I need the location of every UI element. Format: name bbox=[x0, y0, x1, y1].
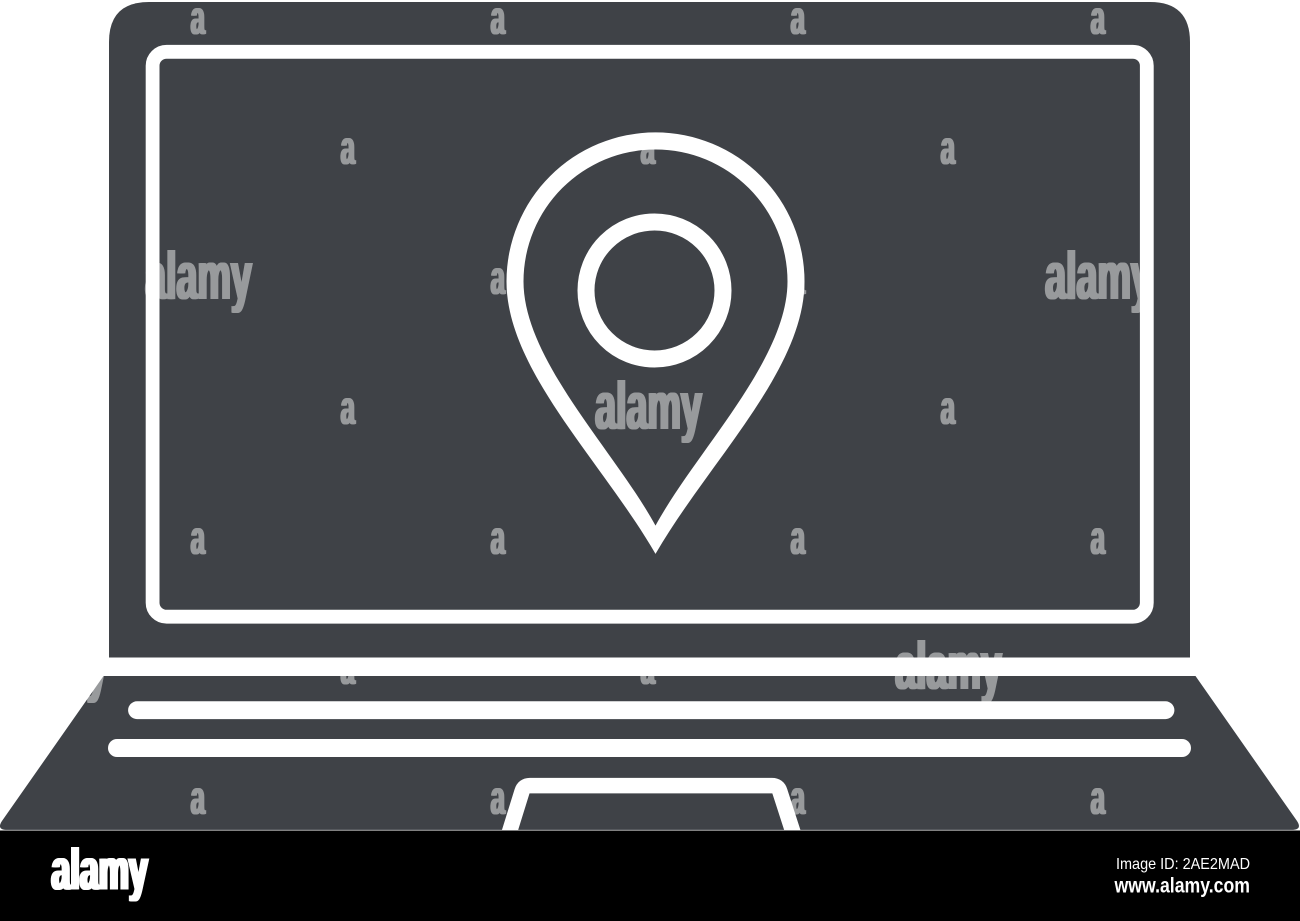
svg-text:alamy: alamy bbox=[53, 838, 150, 903]
svg-text:www.alamy.com: www.alamy.com bbox=[1114, 875, 1250, 898]
svg-text:Image ID: 2AE2MAD: Image ID: 2AE2MAD bbox=[1116, 856, 1250, 873]
